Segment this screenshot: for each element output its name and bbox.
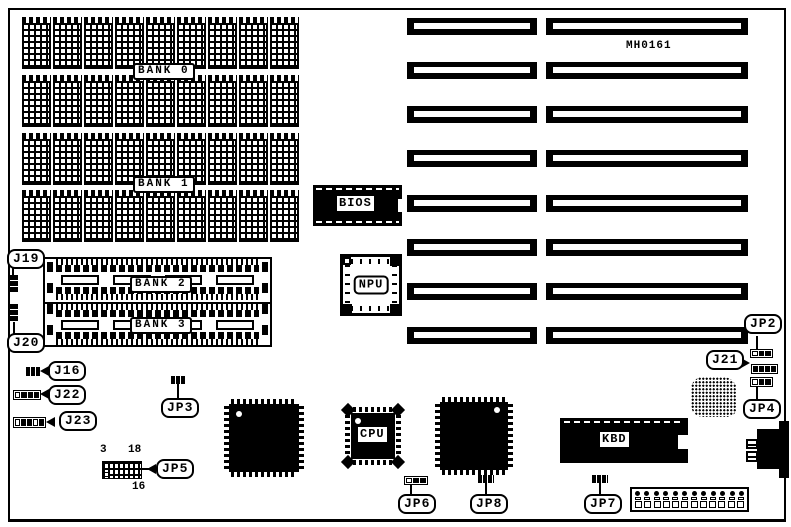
chip-body xyxy=(270,196,299,242)
dip-memory-array xyxy=(22,17,300,243)
dip-chip-row xyxy=(22,190,299,242)
dip-memory-chip xyxy=(22,17,51,69)
power-connector xyxy=(630,487,749,512)
chip-body xyxy=(270,139,299,185)
expansion-slot xyxy=(546,18,748,35)
callout-jp7: JP7 xyxy=(584,494,622,514)
kbd-notch xyxy=(678,435,688,449)
expansion-slot xyxy=(407,18,537,35)
power-pin-dot xyxy=(635,491,640,496)
din-pin xyxy=(746,439,758,449)
simm-pin-strip xyxy=(56,304,259,317)
bios-label: BIOS xyxy=(337,196,374,211)
din-pin xyxy=(746,451,758,462)
bios-dashed-line xyxy=(316,188,399,190)
dip-memory-chip xyxy=(84,17,113,69)
bios-notch xyxy=(398,199,403,212)
chip-body xyxy=(239,81,268,127)
chip-body xyxy=(177,81,206,127)
crystal-oscillator xyxy=(691,377,737,417)
chip-body xyxy=(208,81,237,127)
pin1-dot xyxy=(494,407,500,413)
callout-j22: J22 xyxy=(48,385,86,405)
chip-body xyxy=(53,196,82,242)
jumper-j22 xyxy=(13,390,41,400)
power-pin-dot xyxy=(673,491,678,496)
power-pin-dash xyxy=(682,497,688,500)
dip-chip-row xyxy=(22,75,299,127)
callout-jp5: JP5 xyxy=(156,459,194,479)
power-pin-square xyxy=(691,501,698,508)
chip-body xyxy=(22,81,51,127)
chip-body xyxy=(84,23,113,69)
expansion-slot xyxy=(546,62,748,79)
jp5-pin-bottom: 16 xyxy=(132,481,145,493)
simm-pin-strip xyxy=(56,259,259,272)
dip-memory-chip xyxy=(115,17,144,69)
expansion-slot xyxy=(407,62,537,79)
kbd-dashed-line xyxy=(564,421,684,423)
dip-memory-chip xyxy=(208,190,237,242)
callout-j20: J20 xyxy=(7,333,45,353)
dip-memory-chip xyxy=(115,75,144,127)
power-pin-dot xyxy=(739,491,744,496)
simm-latch-right xyxy=(262,262,268,342)
chip-body xyxy=(270,81,299,127)
jp5-pin-top-right: 18 xyxy=(128,444,141,456)
power-pin-square xyxy=(737,501,744,508)
expansion-slot xyxy=(407,150,537,167)
expansion-slot xyxy=(546,195,748,212)
jumper-j23 xyxy=(13,417,46,428)
power-pin-dash xyxy=(672,497,678,500)
npu-label: NPU xyxy=(354,276,389,295)
dip-memory-chip xyxy=(53,133,82,185)
kbd-label: KBD xyxy=(600,432,629,447)
power-pin-dot xyxy=(730,491,735,496)
jumper-jp7 xyxy=(592,475,608,483)
chip-body xyxy=(208,139,237,185)
jumper-jp4 xyxy=(750,377,773,387)
jumper-jp3 xyxy=(171,376,186,384)
chip-body xyxy=(53,139,82,185)
expansion-slot xyxy=(407,106,537,123)
dip-memory-chip xyxy=(146,75,175,127)
power-pin-dash xyxy=(719,497,725,500)
chip-body xyxy=(208,196,237,242)
chip-body xyxy=(22,139,51,185)
power-pin-dot xyxy=(682,491,687,496)
jumper-j20 xyxy=(10,304,18,322)
keyboard-din-connector xyxy=(757,429,783,469)
chip-body xyxy=(146,81,175,127)
dip-memory-chip xyxy=(84,133,113,185)
power-pin-dot xyxy=(692,491,697,496)
power-pin-dash xyxy=(701,497,707,500)
power-pin-square xyxy=(654,501,661,508)
callout-jp6: JP6 xyxy=(398,494,436,514)
chip-body xyxy=(53,81,82,127)
power-pin-dash xyxy=(729,497,735,500)
pin1-dot xyxy=(355,418,361,424)
dip-memory-chip xyxy=(53,17,82,69)
chip-body xyxy=(177,196,206,242)
npu-socket: NPU xyxy=(340,254,402,316)
dip-memory-chip xyxy=(84,75,113,127)
expansion-slot xyxy=(407,327,537,344)
power-connector-row xyxy=(635,497,744,500)
dip-memory-chip xyxy=(146,17,175,69)
power-pin-square xyxy=(681,501,688,508)
bios-chip: BIOS xyxy=(313,185,402,226)
dip-memory-chip xyxy=(84,190,113,242)
bank0-label: BANK 0 xyxy=(133,63,195,80)
expansion-slot xyxy=(546,327,748,344)
dip-memory-chip xyxy=(239,17,268,69)
chip-body xyxy=(115,196,144,242)
chip-body xyxy=(146,196,175,242)
callout-jp8: JP8 xyxy=(470,494,508,514)
chip-body xyxy=(53,23,82,69)
chip-body xyxy=(22,196,51,242)
callout-j21: J21 xyxy=(706,350,744,370)
chip-body xyxy=(115,81,144,127)
chip-body xyxy=(270,23,299,69)
chip-body xyxy=(84,81,113,127)
power-pin-square xyxy=(718,501,725,508)
dip-memory-chip xyxy=(53,190,82,242)
dip-memory-chip xyxy=(177,190,206,242)
motherboard-diagram: BANK 0 BANK 1 BANK 2 BANK 3 MH0161 xyxy=(0,0,791,527)
power-pin-dot xyxy=(711,491,716,496)
power-pin-square xyxy=(700,501,707,508)
power-connector-row xyxy=(635,501,744,508)
dip-memory-chip xyxy=(146,190,175,242)
dip-memory-chip xyxy=(22,75,51,127)
bank3-label: BANK 3 xyxy=(130,317,192,334)
dip-memory-chip xyxy=(177,17,206,69)
callout-j19: J19 xyxy=(7,249,45,269)
dip-memory-chip xyxy=(115,190,144,242)
power-pin-dash xyxy=(654,497,660,500)
expansion-slot xyxy=(546,106,748,123)
bank1-label: BANK 1 xyxy=(133,176,195,193)
power-pin-dash xyxy=(663,497,669,500)
power-pin-dash xyxy=(644,497,650,500)
power-pin-square xyxy=(728,501,735,508)
dip-memory-chip xyxy=(239,133,268,185)
ic-chip-right xyxy=(440,402,508,470)
callout-jp3: JP3 xyxy=(161,398,199,418)
power-pin-dot xyxy=(663,491,668,496)
dip-memory-chip xyxy=(53,75,82,127)
power-pin-dash xyxy=(738,497,744,500)
power-pin-dot xyxy=(644,491,649,496)
jumper-jp8 xyxy=(478,475,494,483)
chip-body xyxy=(239,139,268,185)
expansion-slot xyxy=(407,283,537,300)
power-pin-dot xyxy=(654,491,659,496)
power-pin-square xyxy=(709,501,716,508)
power-pin-dash xyxy=(710,497,716,500)
cpu-chip: CPU xyxy=(345,407,401,465)
power-pin-dash xyxy=(691,497,697,500)
expansion-slot xyxy=(546,283,748,300)
npu-pin1-mark xyxy=(343,257,351,265)
dip-memory-chip xyxy=(177,75,206,127)
chip-body xyxy=(84,196,113,242)
expansion-slot xyxy=(546,239,748,256)
simm-latch-left xyxy=(47,262,53,342)
expansion-slot xyxy=(407,239,537,256)
dip-memory-chip xyxy=(270,190,299,242)
power-pin-square xyxy=(672,501,679,508)
pin1-dot xyxy=(236,411,242,417)
bios-dashed-line xyxy=(316,221,399,223)
power-pin-dot xyxy=(720,491,725,496)
expansion-slot xyxy=(546,150,748,167)
dip-memory-chip xyxy=(208,75,237,127)
jp5-pin-top-left: 3 xyxy=(100,444,107,456)
power-pin-square xyxy=(644,501,651,508)
chip-body xyxy=(239,196,268,242)
dip-chip-row xyxy=(22,17,299,69)
dip-memory-chip xyxy=(270,75,299,127)
power-pin-dot xyxy=(701,491,706,496)
dip-memory-chip xyxy=(239,190,268,242)
power-pin-square xyxy=(635,501,642,508)
dip-memory-chip xyxy=(239,75,268,127)
chip-body xyxy=(239,23,268,69)
jumper-j21 xyxy=(751,364,778,374)
dip-memory-chip xyxy=(208,17,237,69)
dip-memory-chip xyxy=(208,133,237,185)
power-pin-square xyxy=(663,501,670,508)
bank2-label: BANK 2 xyxy=(130,276,192,293)
cpu-label: CPU xyxy=(358,427,387,442)
jumper-jp6 xyxy=(404,476,428,485)
dip-memory-chip xyxy=(22,133,51,185)
expansion-slot xyxy=(407,195,537,212)
dip-memory-chip xyxy=(270,17,299,69)
chip-body xyxy=(22,23,51,69)
dip-memory-chip xyxy=(270,133,299,185)
callout-jp2: JP2 xyxy=(744,314,782,334)
jp5-header xyxy=(102,461,142,479)
ic-chip-left xyxy=(229,404,299,472)
jumper-jp2 xyxy=(750,349,773,358)
chip-body xyxy=(208,23,237,69)
board-id-text: MH0161 xyxy=(626,40,672,52)
callout-j23: J23 xyxy=(59,411,97,431)
power-connector-row xyxy=(635,491,744,496)
power-pin-dash xyxy=(635,497,641,500)
jumper-j16 xyxy=(26,367,41,376)
kbd-chip: KBD xyxy=(560,418,688,463)
callout-j16: J16 xyxy=(48,361,86,381)
dip-memory-chip xyxy=(22,190,51,242)
callout-jp4: JP4 xyxy=(743,399,781,419)
jp5-pin1-mark xyxy=(104,472,109,477)
chip-body xyxy=(84,139,113,185)
jumper-j19 xyxy=(10,275,18,293)
